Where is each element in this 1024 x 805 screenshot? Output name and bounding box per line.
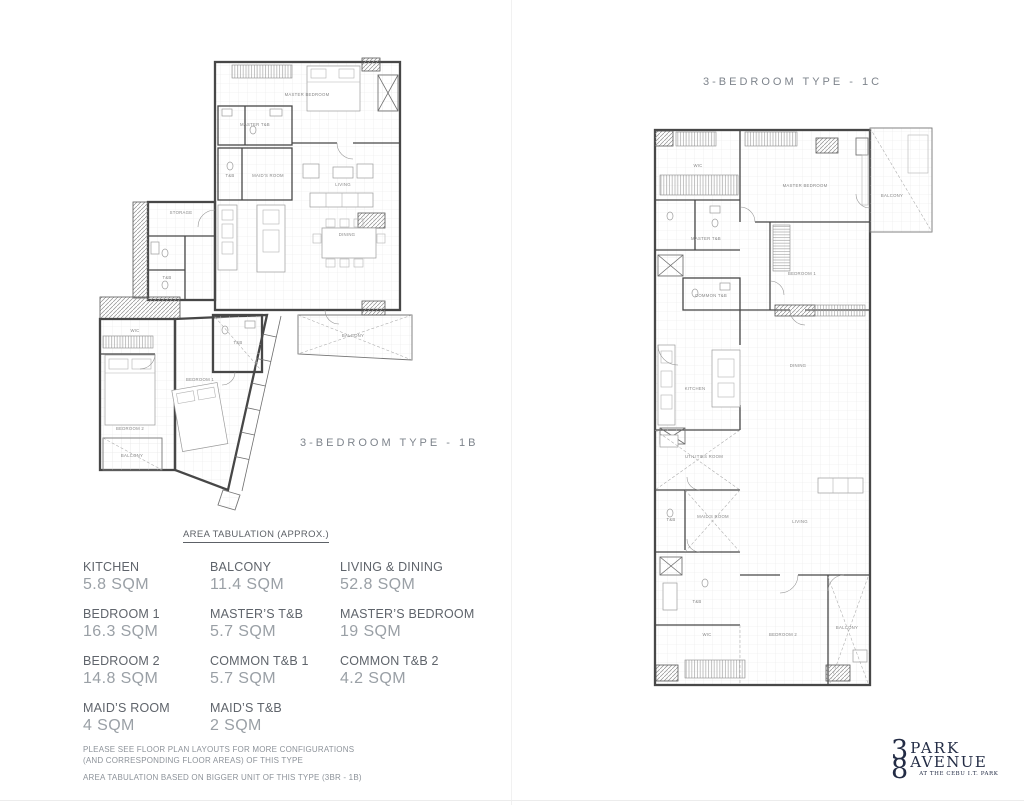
tab-entry-label: MAID’S ROOM — [83, 701, 210, 715]
logo-words: PARK AVENUE AT THE CEBU I.T. PARK — [910, 742, 998, 780]
room-label: KITCHEN — [685, 386, 706, 391]
room-label: WIC — [702, 632, 711, 637]
room-label: T&B — [162, 275, 171, 280]
tab-entry-value: 5.7 SQM — [210, 623, 340, 641]
tab-entry-value: 11.4 SQM — [210, 576, 340, 594]
room-label: MASTER BEDROOM — [285, 92, 330, 97]
room-label: WIC — [693, 163, 702, 168]
tab-entry-label: MAID’S T&B — [210, 701, 340, 715]
room-label: T&B — [692, 599, 701, 604]
room-label: MASTER T&B — [240, 122, 270, 127]
area-tabulation: AREA TABULATION (APPROX.) KITCHEN 5.8 SQ… — [83, 524, 483, 735]
tab-entry: MAID’S ROOM 4 SQM — [83, 701, 210, 735]
tab-entry: LIVING & DINING 52.8 SQM — [340, 560, 483, 594]
brochure-page: MASTER BEDROOM MASTER T&B T&B MAID'S ROO… — [0, 0, 1024, 805]
room-label: MASTER BEDROOM — [783, 183, 828, 188]
logo-tagline: AT THE CEBU I.T. PARK — [919, 771, 998, 777]
room-label: T&B — [233, 340, 242, 345]
tab-entry-label: BEDROOM 1 — [83, 607, 210, 621]
tab-entry-label: MASTER’S BEDROOM — [340, 607, 483, 621]
room-label: UTILITIES ROOM — [685, 454, 723, 459]
tab-entry-value: 5.8 SQM — [83, 576, 210, 594]
room-label: T&B — [225, 173, 234, 178]
floorplan-type-1c: WIC MASTER BEDROOM BALCONY MASTER T&B CO… — [640, 113, 940, 698]
tab-entry-label: KITCHEN — [83, 560, 210, 574]
room-label: COMMON T&B — [695, 293, 727, 298]
tab-entry: KITCHEN 5.8 SQM — [83, 560, 210, 594]
tab-entry: BALCONY 11.4 SQM — [210, 560, 340, 594]
tab-entry: MASTER’S BEDROOM 19 SQM — [340, 607, 483, 641]
logo-digits: 3 8 — [891, 741, 908, 780]
plan-title-1b: 3-BEDROOM TYPE - 1B — [300, 437, 478, 449]
room-label: STORAGE — [170, 210, 193, 215]
footnotes: PLEASE SEE FLOOR PLAN LAYOUTS FOR MORE C… — [83, 744, 362, 784]
room-label: BEDROOM 1 — [186, 377, 214, 382]
plan-title-1c: 3-BEDROOM TYPE - 1C — [703, 76, 882, 88]
footnote-line: AREA TABULATION BASED ON BIGGER UNIT OF … — [83, 772, 362, 783]
room-label: DINING — [790, 363, 807, 368]
tab-entry-label: BEDROOM 2 — [83, 654, 210, 668]
tab-entry-label: COMMON T&B 1 — [210, 654, 340, 668]
room-label: BEDROOM 2 — [769, 632, 797, 637]
logo-digit-8: 8 — [891, 760, 908, 779]
room-label: BEDROOM 1 — [788, 271, 816, 276]
room-label: MAID'S ROOM — [252, 173, 284, 178]
tab-entry: COMMON T&B 2 4.2 SQM — [340, 654, 483, 688]
area-tabulation-grid: KITCHEN 5.8 SQM BALCONY 11.4 SQM LIVING … — [83, 560, 483, 735]
room-label: BALCONY — [881, 193, 903, 198]
tab-entry-value: 16.3 SQM — [83, 623, 210, 641]
room-label: DINING — [339, 232, 356, 237]
tab-entry: BEDROOM 1 16.3 SQM — [83, 607, 210, 641]
room-label: BALCONY — [836, 625, 858, 630]
tab-entry: COMMON T&B 1 5.7 SQM — [210, 654, 340, 688]
tab-entry-value: 5.7 SQM — [210, 670, 340, 688]
room-label: T&B — [666, 517, 675, 522]
tab-entry-label: BALCONY — [210, 560, 340, 574]
tab-entry-value: 4.2 SQM — [340, 670, 483, 688]
room-label: WIC — [130, 328, 139, 333]
room-label: LIVING — [792, 519, 808, 524]
room-label: BALCONY — [342, 333, 364, 338]
tab-entry: MASTER’S T&B 5.7 SQM — [210, 607, 340, 641]
tab-entry-label: LIVING & DINING — [340, 560, 483, 574]
tab-entry-value: 2 SQM — [210, 717, 340, 735]
room-label: MASTER T&B — [691, 236, 721, 241]
tab-entry-value: 19 SQM — [340, 623, 483, 641]
footnote-line: (AND CORRESPONDING FLOOR AREAS) OF THIS … — [83, 755, 362, 766]
room-label: BALCONY — [121, 453, 143, 458]
room-label: BEDROOM 2 — [116, 426, 144, 431]
page-fold-divider — [511, 0, 512, 805]
tab-entry: MAID’S T&B 2 SQM — [210, 701, 340, 735]
logo-word-avenue: AVENUE — [910, 755, 998, 770]
tab-entry: BEDROOM 2 14.8 SQM — [83, 654, 210, 688]
bottom-rule — [0, 800, 1024, 801]
room-label: LIVING — [335, 182, 351, 187]
brand-logo-38-park-avenue: 3 8 PARK AVENUE AT THE CEBU I.T. PARK — [891, 741, 998, 780]
tab-entry-empty — [340, 701, 483, 735]
room-label: MAID'S ROOM — [697, 514, 729, 519]
tab-entry-label: MASTER’S T&B — [210, 607, 340, 621]
tab-entry-value: 4 SQM — [83, 717, 210, 735]
area-tabulation-heading: AREA TABULATION (APPROX.) — [183, 529, 329, 543]
tab-entry-value: 14.8 SQM — [83, 670, 210, 688]
tab-entry-value: 52.8 SQM — [340, 576, 483, 594]
tab-entry-label: COMMON T&B 2 — [340, 654, 483, 668]
footnote-line: PLEASE SEE FLOOR PLAN LAYOUTS FOR MORE C… — [83, 744, 362, 755]
